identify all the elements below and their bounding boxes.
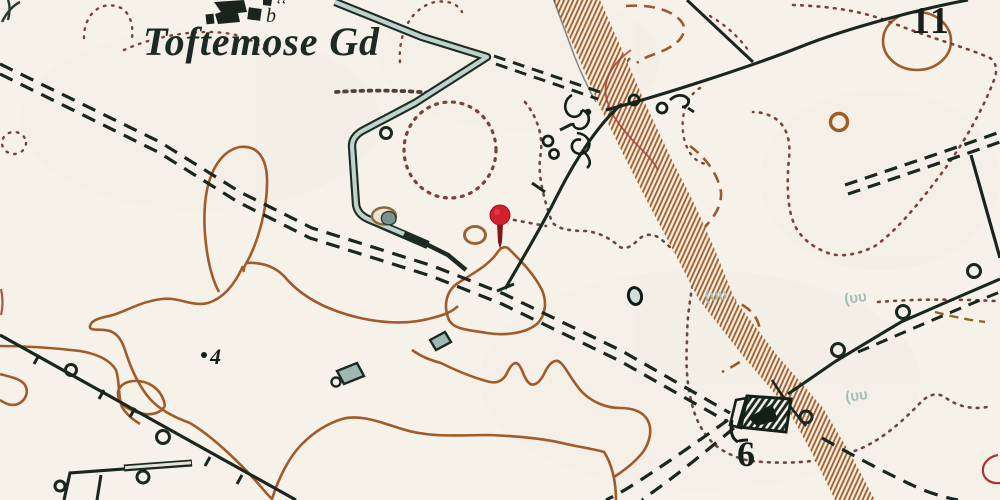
svg-text:6: 6 [737, 434, 755, 474]
svg-text:ʻʻ: ʻʻ [276, 0, 287, 14]
svg-text:4: 4 [209, 344, 221, 369]
svg-text:11: 11 [911, 0, 951, 42]
svg-text:(υυ: (υυ [844, 386, 869, 406]
svg-text:(υυ: (υυ [843, 288, 868, 308]
svg-text:Toftemose Gd: Toftemose Gd [143, 19, 380, 64]
svg-text:(υυ: (υυ [704, 286, 728, 305]
